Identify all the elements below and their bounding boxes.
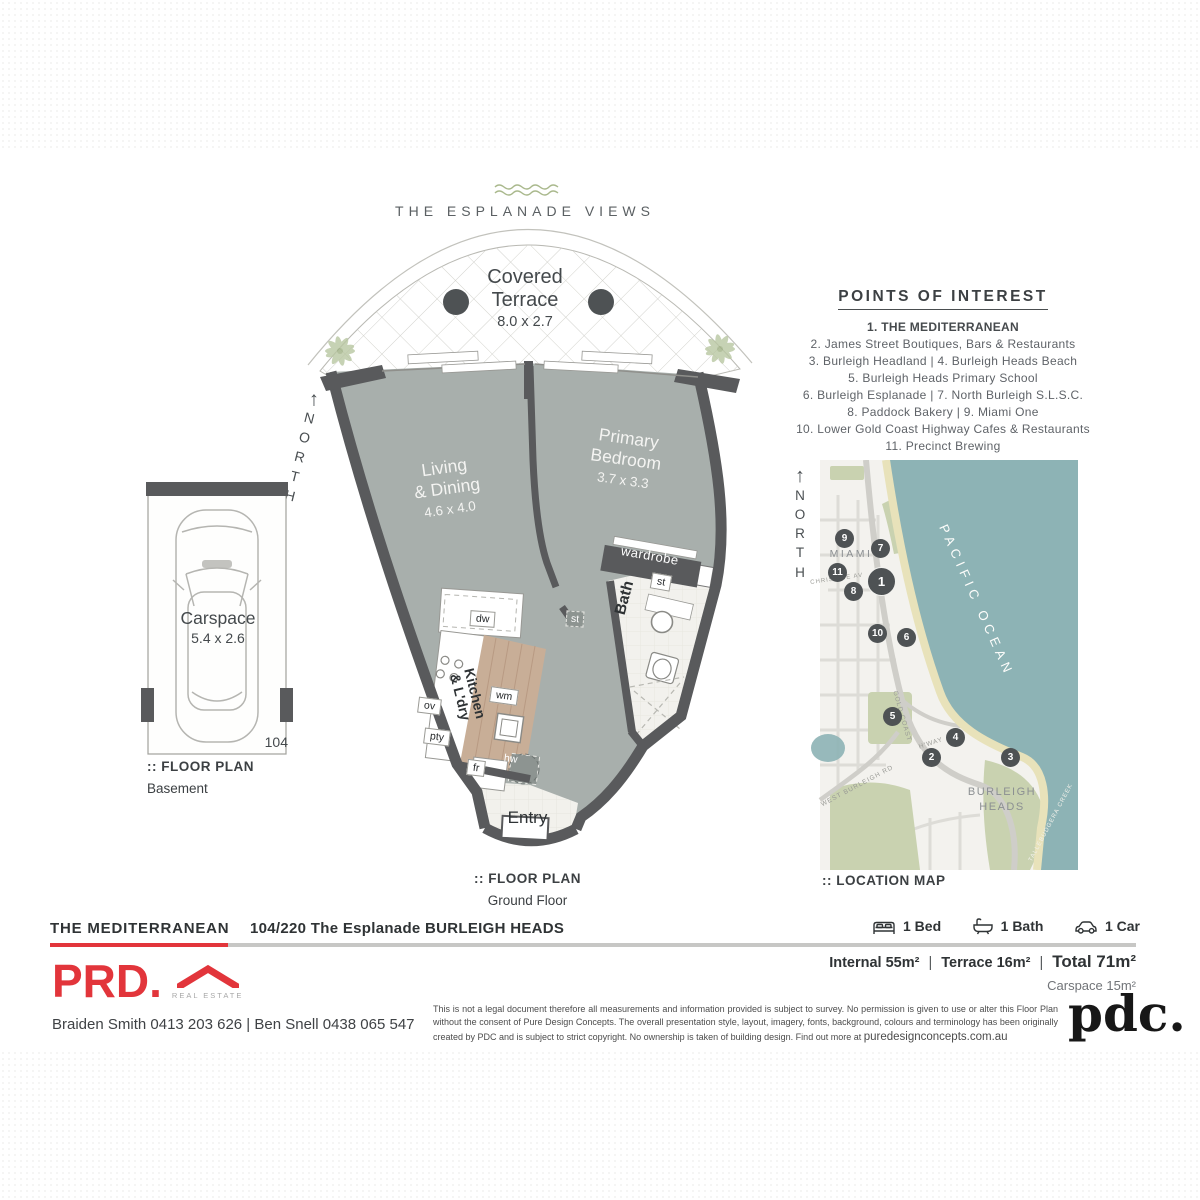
poi-line: 3. Burleigh Headland | 4. Burleigh Heads… (766, 353, 1120, 370)
map-marker-7: 7 (871, 539, 890, 558)
carspace-caption-prefix: :: FLOOR PLAN (147, 759, 254, 774)
stat-separator: | (928, 955, 932, 971)
fridge-label: fr (466, 759, 486, 777)
map-marker-8: 8 (844, 582, 863, 601)
floor-plan-caption-prefix: :: FLOOR PLAN (474, 871, 581, 886)
beds-feature: 1 Bed (872, 917, 941, 935)
terrace-dims: 8.0 x 2.7 (450, 314, 600, 331)
carspace-dims: 5.4 x 2.6 (150, 630, 286, 646)
carspace-label: Carspace 5.4 x 2.6 (150, 608, 286, 646)
carspace-caption: :: FLOOR PLAN Basement (147, 756, 254, 799)
map-north: ↑ NORTH (792, 466, 808, 582)
floor-plan-caption-floor: Ground Floor (488, 893, 568, 908)
location-map-caption-text: :: LOCATION MAP (822, 873, 945, 888)
feature-icons-row: 1 Bed 1 Bath 1 Car (872, 917, 1140, 935)
oven-label: ov (417, 697, 442, 716)
storage-bath-label: st (650, 572, 673, 591)
poi-title: POINTS OF INTEREST (838, 288, 1047, 310)
floorplan-page: THE ESPLANADE VIEWS (0, 0, 1200, 1200)
cars-label: 1 Car (1105, 918, 1140, 934)
dishwasher-label: dw (469, 610, 495, 628)
total-area: Total 71m² (1052, 952, 1136, 971)
pantry-label: pty (423, 727, 451, 746)
map-marker-3: 3 (1001, 748, 1020, 767)
agents-line: Braiden Smith 0413 203 626 | Ben Snell 0… (52, 1016, 415, 1033)
beds-label: 1 Bed (903, 918, 941, 934)
location-map-caption: :: LOCATION MAP (822, 872, 945, 890)
baths-label: 1 Bath (1001, 918, 1044, 934)
storage-hall-label: st (565, 610, 584, 627)
map-marker-2: 2 (922, 748, 941, 767)
terrace-line1: Covered (450, 266, 600, 289)
entry-label: Entry (480, 808, 575, 828)
terrace-area: Terrace 16m² (941, 955, 1030, 971)
cars-feature: 1 Car (1074, 917, 1140, 935)
poi-line: 10. Lower Gold Coast Highway Cafes & Res… (766, 421, 1120, 438)
baths-feature: 1 Bath (972, 917, 1044, 935)
footer-rule (50, 943, 1136, 947)
bed-icon (872, 918, 896, 935)
prd-wordmark: PRD. (52, 958, 162, 1004)
poi-line: 6. Burleigh Esplanade | 7. North Burleig… (766, 387, 1120, 404)
carspace-caption-floor: Basement (147, 781, 208, 796)
hot-water-label: hw (499, 751, 522, 768)
page-title: THE ESPLANADE VIEWS (370, 203, 680, 219)
disclaimer: This is not a legal document therefore a… (433, 1003, 1058, 1046)
prd-tagline: REAL ESTATE (172, 991, 243, 1000)
terrace-line2: Terrace (450, 289, 600, 312)
location-map: PACIFIC OCEAN MIAMI BURLEIGH HEADS CHRIS… (790, 460, 1078, 870)
prd-roof-block: REAL ESTATE (172, 958, 243, 1000)
map-marker-11: 11 (828, 563, 847, 582)
map-marker-10: 10 (868, 624, 887, 643)
map-marker-6: 6 (897, 628, 916, 647)
points-of-interest: POINTS OF INTEREST 1. THE MEDITERRANEAN … (766, 288, 1120, 455)
map-marker-5: 5 (883, 707, 902, 726)
north-arrow-icon: ↑ (795, 466, 805, 486)
building-name: THE MEDITERRANEAN (50, 920, 229, 937)
north-word: NORTH (792, 486, 808, 582)
footer-rule-accent (50, 943, 228, 947)
map-marker-9: 9 (835, 529, 854, 548)
poi-line: 8. Paddock Bakery | 9. Miami One (766, 404, 1120, 421)
poi-line: 5. Burleigh Heads Primary School (766, 370, 1120, 387)
property-address: 104/220 The Esplanade BURLEIGH HEADS (250, 920, 564, 937)
floor-plan-caption: :: FLOOR PLAN Ground Floor (455, 868, 600, 911)
carspace-name: Carspace (150, 608, 286, 628)
map-marker-4: 4 (946, 728, 965, 747)
north-arrow-icon: ↑ (309, 389, 319, 409)
roof-icon (177, 964, 239, 988)
bath-icon (972, 917, 994, 935)
carspace-unit-number: 104 (248, 734, 288, 750)
pdc-logo: pdc. (1068, 984, 1186, 1043)
car-icon (1074, 918, 1098, 935)
disclaimer-link[interactable]: puredesignconcepts.com.au (864, 1031, 1008, 1043)
area-stats: Internal 55m²|Terrace 16m²|Total 71m² (690, 952, 1136, 972)
waves-icon (494, 182, 566, 198)
poi-line: 11. Precinct Brewing (766, 438, 1120, 455)
terrace-label: Covered Terrace 8.0 x 2.7 (450, 266, 600, 331)
internal-area: Internal 55m² (829, 955, 919, 971)
suburb-burleigh-label: BURLEIGH HEADS (952, 785, 1052, 816)
prd-logo: PRD. REAL ESTATE (52, 958, 243, 1004)
stat-separator: | (1039, 955, 1043, 971)
poi-line: 2. James Street Boutiques, Bars & Restau… (766, 336, 1120, 353)
poi-line: 1. THE MEDITERRANEAN (766, 319, 1120, 336)
map-marker-1: 1 (867, 567, 896, 596)
texture-band-bottom (0, 1050, 1200, 1200)
texture-band-top (0, 0, 1200, 148)
